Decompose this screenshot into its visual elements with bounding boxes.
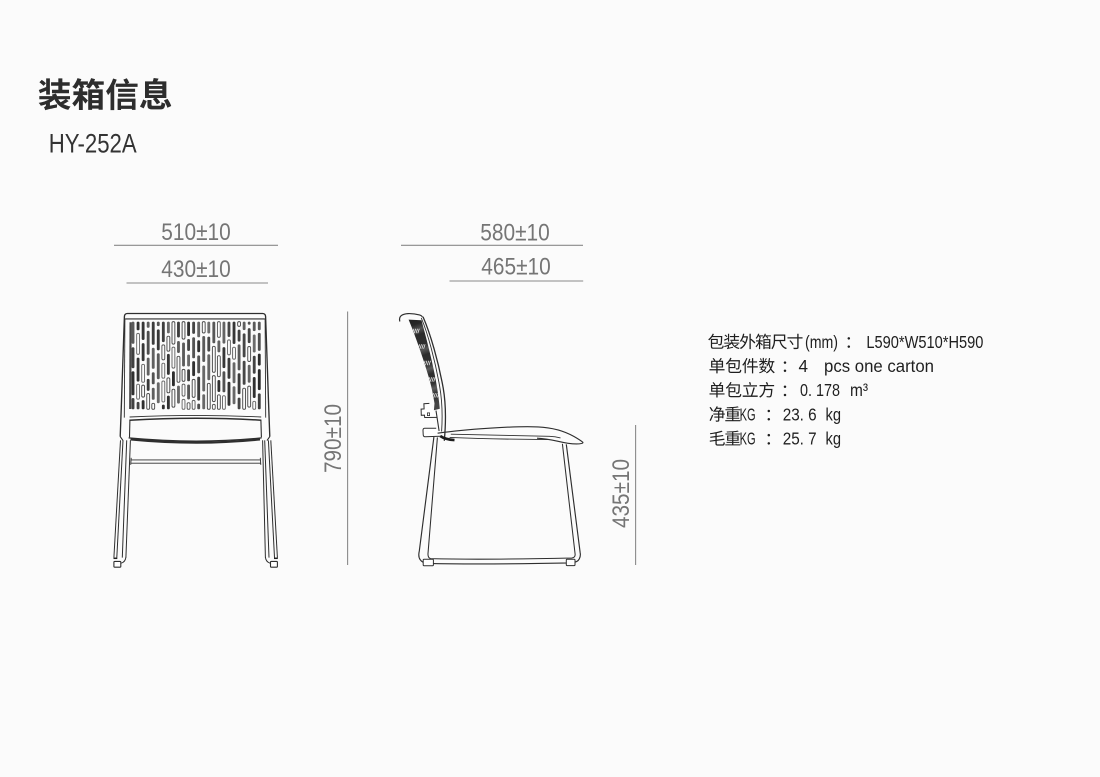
svg-text:L590*W510*H590: L590*W510*H590	[866, 332, 983, 352]
svg-text:580±10: 580±10	[480, 220, 550, 247]
svg-text:790±10: 790±10	[320, 404, 347, 473]
svg-text:23. 6: 23. 6	[783, 404, 817, 424]
svg-text:kg: kg	[826, 404, 842, 424]
svg-text:KG: KG	[740, 404, 756, 424]
svg-text:510±10: 510±10	[161, 219, 231, 246]
svg-text:m³: m³	[850, 380, 868, 400]
svg-text:0. 178: 0. 178	[800, 380, 840, 400]
svg-text:KG: KG	[740, 429, 756, 449]
svg-text:430±10: 430±10	[161, 256, 231, 283]
svg-text:HY-252A: HY-252A	[49, 129, 137, 159]
svg-text:pcs one carton: pcs one carton	[824, 356, 934, 376]
svg-text:465±10: 465±10	[481, 254, 551, 281]
svg-text:(mm): (mm)	[805, 332, 838, 352]
svg-text:kg: kg	[826, 429, 842, 449]
svg-text:4: 4	[799, 356, 809, 376]
svg-text:25. 7: 25. 7	[783, 429, 817, 449]
svg-text:435±10: 435±10	[608, 459, 635, 528]
